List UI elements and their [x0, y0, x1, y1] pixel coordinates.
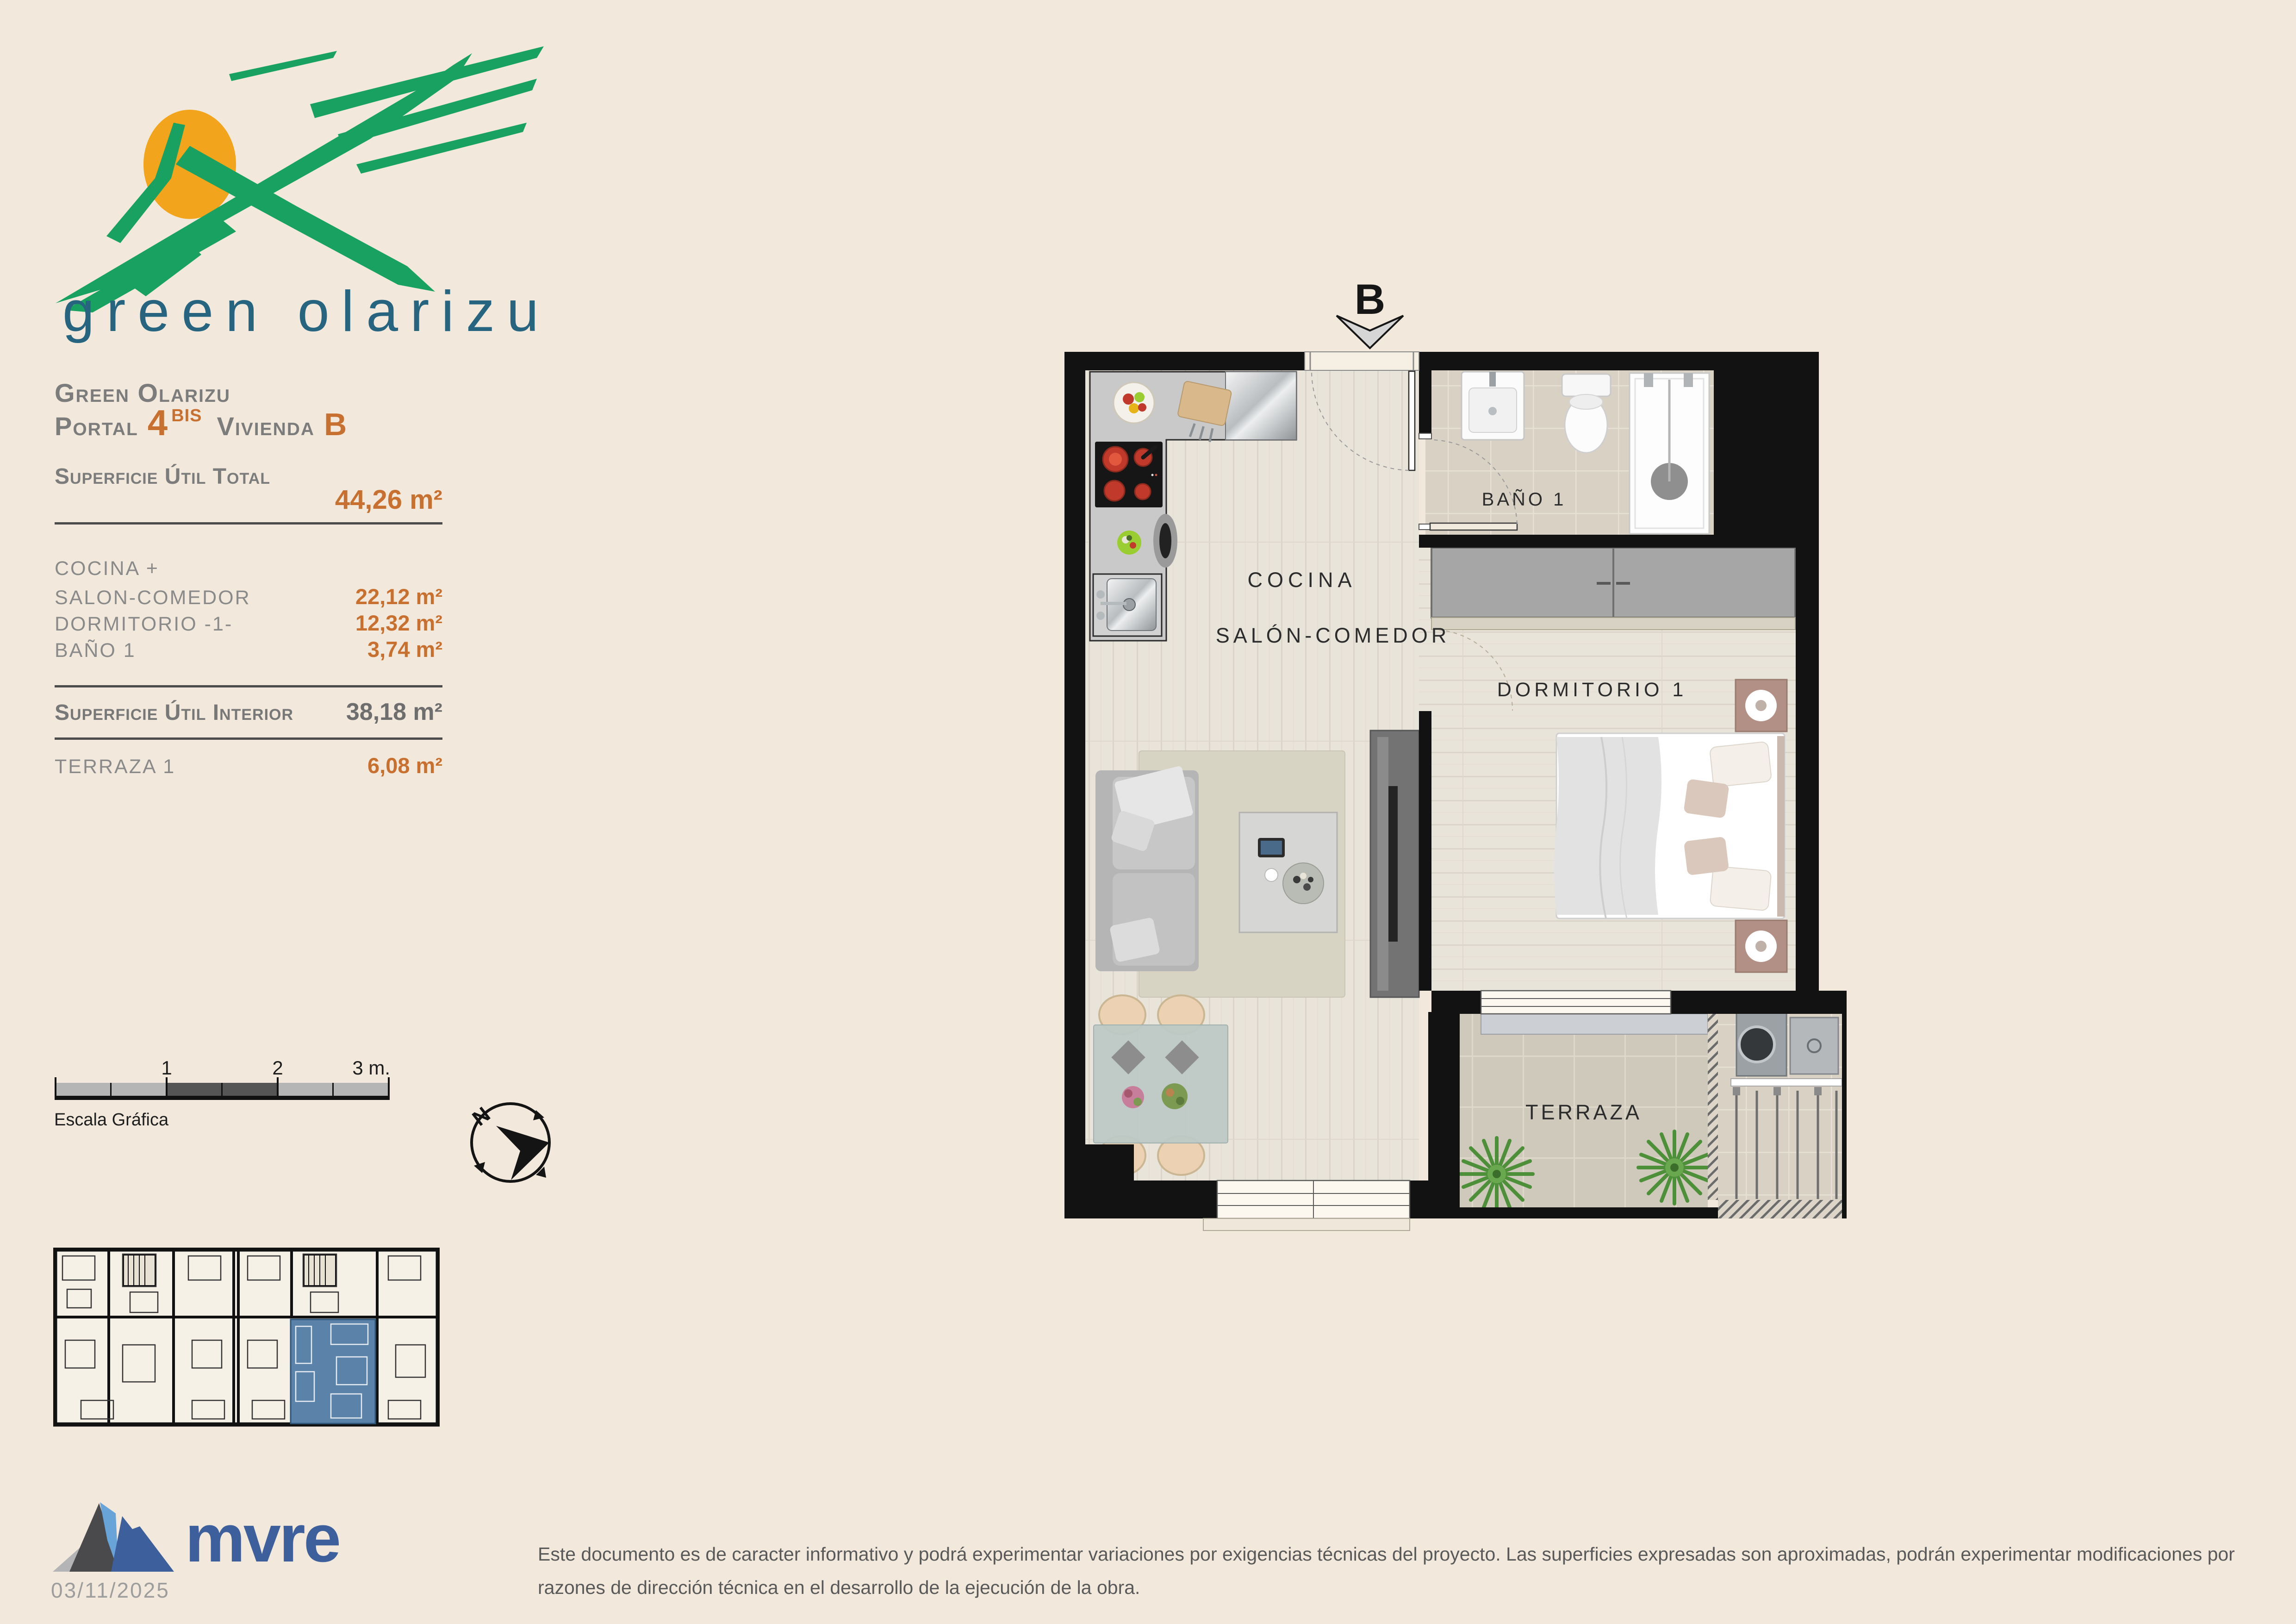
mountain-logo-icon: [53, 1502, 174, 1572]
bathroom-label: BAÑO 1: [1482, 489, 1567, 510]
brand-logo: green olarizu: [37, 25, 555, 350]
room-area-row: BAÑO 1 3,74 m²: [55, 637, 442, 663]
terrace-value: 6,08 m²: [367, 753, 442, 778]
terrace-label: TERRAZA: [1525, 1100, 1642, 1124]
sofa: [1095, 765, 1199, 971]
room-label: SALON-COMEDOR: [55, 587, 251, 609]
wardrobe: [1431, 548, 1795, 630]
portal-number: 4: [148, 405, 168, 441]
salad-plate: [1117, 531, 1141, 555]
shower: [1630, 373, 1709, 534]
fruit-bowl: [1114, 382, 1154, 423]
terrace-area-row: TERRAZA 1 6,08 m²: [55, 753, 442, 778]
bedroom-window: [1481, 991, 1671, 1014]
floorplan-sheet: { "brand": { "name": "green olarizu", "g…: [0, 0, 2296, 1624]
nightstand-top: [1736, 680, 1787, 731]
terrace-sill: [1481, 1014, 1708, 1034]
coffee-table: [1239, 812, 1337, 932]
interior-area-label: Superficie Útil Interior: [55, 700, 293, 725]
portal-label: Portal: [55, 411, 138, 441]
brand-logo-text: green olarizu: [62, 280, 551, 344]
section-marker-letter: B: [1355, 278, 1385, 323]
interior-area-row: Superficie Útil Interior 38,18 m²: [55, 698, 442, 726]
scale-tick-2: 2: [272, 1057, 283, 1079]
interior-area-value: 38,18 m²: [346, 698, 442, 726]
plant-icon: [1461, 1138, 1533, 1210]
room-area-row: COCINA +: [55, 557, 442, 584]
kitchen-label: COCINA: [1247, 568, 1356, 592]
scale-bar-icon: [55, 1077, 390, 1100]
room-label: BAÑO 1: [55, 639, 136, 662]
project-title: Green Olarizu: [55, 378, 230, 408]
unit-title: Portal 4 BIS Vivienda B: [55, 405, 347, 441]
living-label: SALÓN-COMEDOR: [1216, 624, 1450, 647]
room-label: DORMITORIO -1-: [55, 613, 233, 636]
terrace-divider-wall: [1708, 1014, 1718, 1200]
scale-bar-label: Escala Gráfica: [54, 1110, 169, 1130]
document-date: 03/11/2025: [51, 1578, 170, 1603]
bathroom-sink: [1462, 372, 1524, 440]
scale-tick-1: 1: [161, 1057, 172, 1079]
company-logo: mvre: [52, 1498, 376, 1574]
divider: [55, 685, 442, 687]
graphic-scale: 1 2 3 m. Escala Gráfica: [53, 1057, 391, 1136]
disclaimer-text: Este documento es de caracter informativ…: [538, 1538, 2278, 1605]
logo-brush-strokes-icon: [56, 46, 544, 312]
total-area-value: 44,26 m²: [55, 484, 442, 515]
terrace-label: TERRAZA 1: [55, 756, 175, 778]
pergola-edge: [1718, 1200, 1842, 1218]
scale-tick-3: 3 m.: [352, 1057, 390, 1079]
room-value: 22,12 m²: [355, 584, 442, 609]
room-value: 3,74 m²: [367, 637, 442, 662]
disclaimer-line-2: razones de dirección técnica en el desar…: [538, 1571, 2278, 1605]
compass-north-letter: N: [467, 1102, 494, 1130]
room-value: 12,32 m²: [355, 610, 442, 636]
portal-suffix: BIS: [171, 406, 202, 426]
bedroom-label: DORMITORIO 1: [1497, 679, 1687, 701]
kitchen-sink: [1093, 574, 1162, 636]
divider: [55, 737, 442, 740]
nightstand-bottom: [1736, 920, 1787, 972]
toilet: [1562, 374, 1611, 453]
plant-icon: [1638, 1131, 1711, 1204]
disclaimer-line-1: Este documento es de caracter informativ…: [538, 1538, 2278, 1571]
living-window: [1203, 1181, 1410, 1230]
room-area-row: SALON-COMEDOR 22,12 m²: [55, 584, 442, 610]
key-plan: [53, 1248, 440, 1432]
vivienda-label: Vivienda: [217, 411, 315, 441]
fridge: [1226, 372, 1296, 440]
divider: [55, 522, 442, 525]
vivienda-letter: B: [324, 409, 347, 440]
company-logo-text: mvre: [185, 1500, 339, 1574]
room-area-table: COCINA + SALON-COMEDOR 22,12 m² DORMITOR…: [55, 557, 442, 663]
room-label: COCINA +: [55, 557, 159, 580]
cooktop: [1095, 442, 1163, 507]
room-area-row: DORMITORIO -1- 12,32 m²: [55, 610, 442, 637]
floor-plan: BAÑO 1 COCINA SALÓN-COMEDOR DORMITORIO 1…: [1064, 343, 1847, 1241]
north-compass-icon: N: [467, 1096, 554, 1187]
tv-unit: [1370, 731, 1419, 997]
bed: [1554, 733, 1785, 918]
